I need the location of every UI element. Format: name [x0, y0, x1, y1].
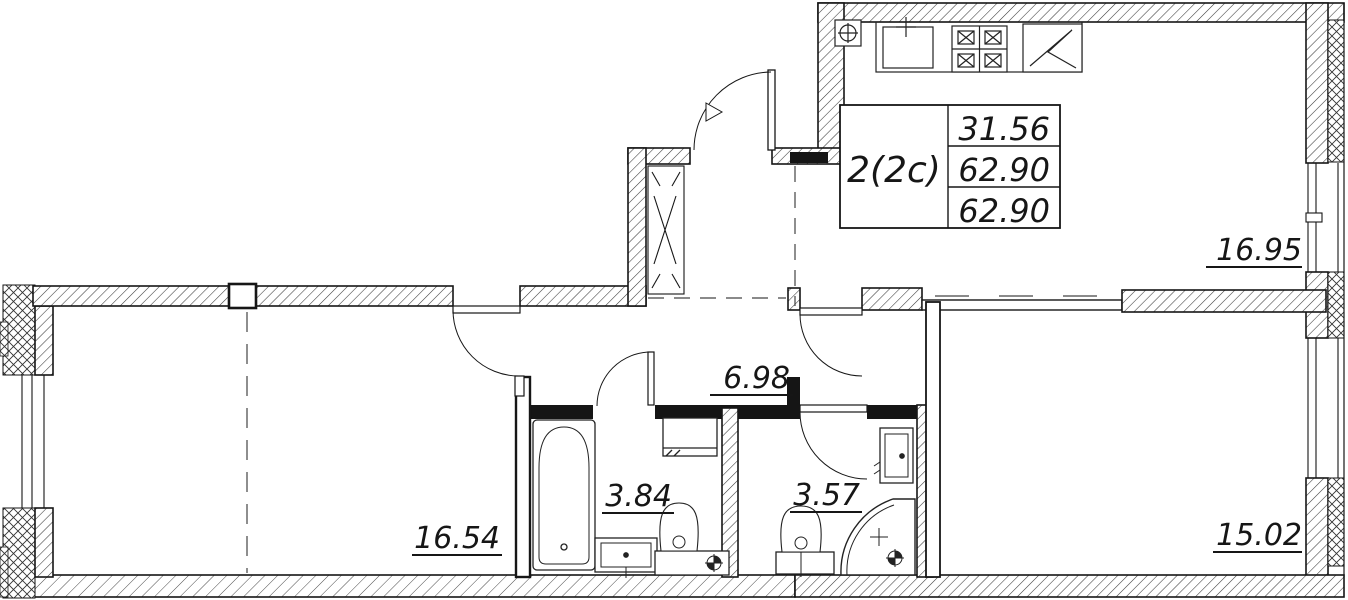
- area-label-bathroom: 3.84: [605, 479, 672, 514]
- total-area-value: 62.90: [958, 151, 1050, 189]
- wall-livingroom-top-right: [520, 286, 646, 306]
- washbasin-icon: [595, 538, 657, 578]
- total-area-balcony-value: 62.90: [958, 192, 1050, 230]
- unit-info-table: 2(2c) 31.56 62.90 62.90: [840, 105, 1060, 230]
- insulation-right-mid: [1328, 272, 1344, 338]
- wall-kitchen-bedroom: [1122, 290, 1326, 312]
- bathtub-icon: [533, 420, 595, 570]
- wall-right-bottom: [1306, 478, 1328, 577]
- unit-type-label: 2(2c): [847, 150, 941, 191]
- wall-hall-right: [862, 288, 922, 310]
- wall-left-bottom-inner: [35, 508, 53, 577]
- area-label-hallway: 6.98: [723, 361, 790, 396]
- partition-kitchen-bedroom: [922, 300, 1122, 310]
- ledge-left-bottom: [0, 547, 8, 597]
- wall-hall-jamb: [788, 288, 800, 310]
- area-label-shower-wc: 3.57: [793, 478, 860, 513]
- washbasin-icon: [874, 428, 913, 483]
- ledge-left-top: [0, 322, 8, 356]
- floor-plan-drawing: 2(2c) 31.56 62.90 62.90: [0, 0, 1348, 600]
- ventilation-shaft-icon: [648, 166, 684, 294]
- wall-bath-left: [516, 377, 530, 577]
- water-heater-icon: [663, 418, 717, 456]
- wall-top: [818, 3, 1344, 22]
- living-area-value: 31.56: [958, 110, 1050, 148]
- wall-bedroom-left: [926, 302, 940, 577]
- area-label-bedroom: 15.02: [1216, 518, 1302, 553]
- floor-plan: 2(2c) 31.56 62.90 62.90: [0, 0, 1348, 600]
- column: [790, 152, 828, 163]
- area-label-living-room: 16.54: [414, 521, 500, 556]
- insulation-right-bottom: [1328, 478, 1344, 566]
- wall-right-top: [1306, 3, 1328, 163]
- stove-icon: [952, 26, 1007, 72]
- wall-bottom-left: [8, 575, 795, 597]
- gas-meter-icon: [835, 20, 861, 46]
- area-label-kitchen-living: 16.95: [1216, 233, 1302, 268]
- wall-wc-top-right: [867, 405, 922, 419]
- wall-bottom-right: [795, 575, 1344, 597]
- wall-shaft: [628, 148, 646, 306]
- wall-stub: [229, 284, 256, 308]
- wall-left-top-inner: [35, 306, 53, 375]
- insulation-right-top: [1328, 20, 1344, 162]
- window-mullion: [1306, 213, 1322, 222]
- refrigerator-icon: [1023, 24, 1082, 72]
